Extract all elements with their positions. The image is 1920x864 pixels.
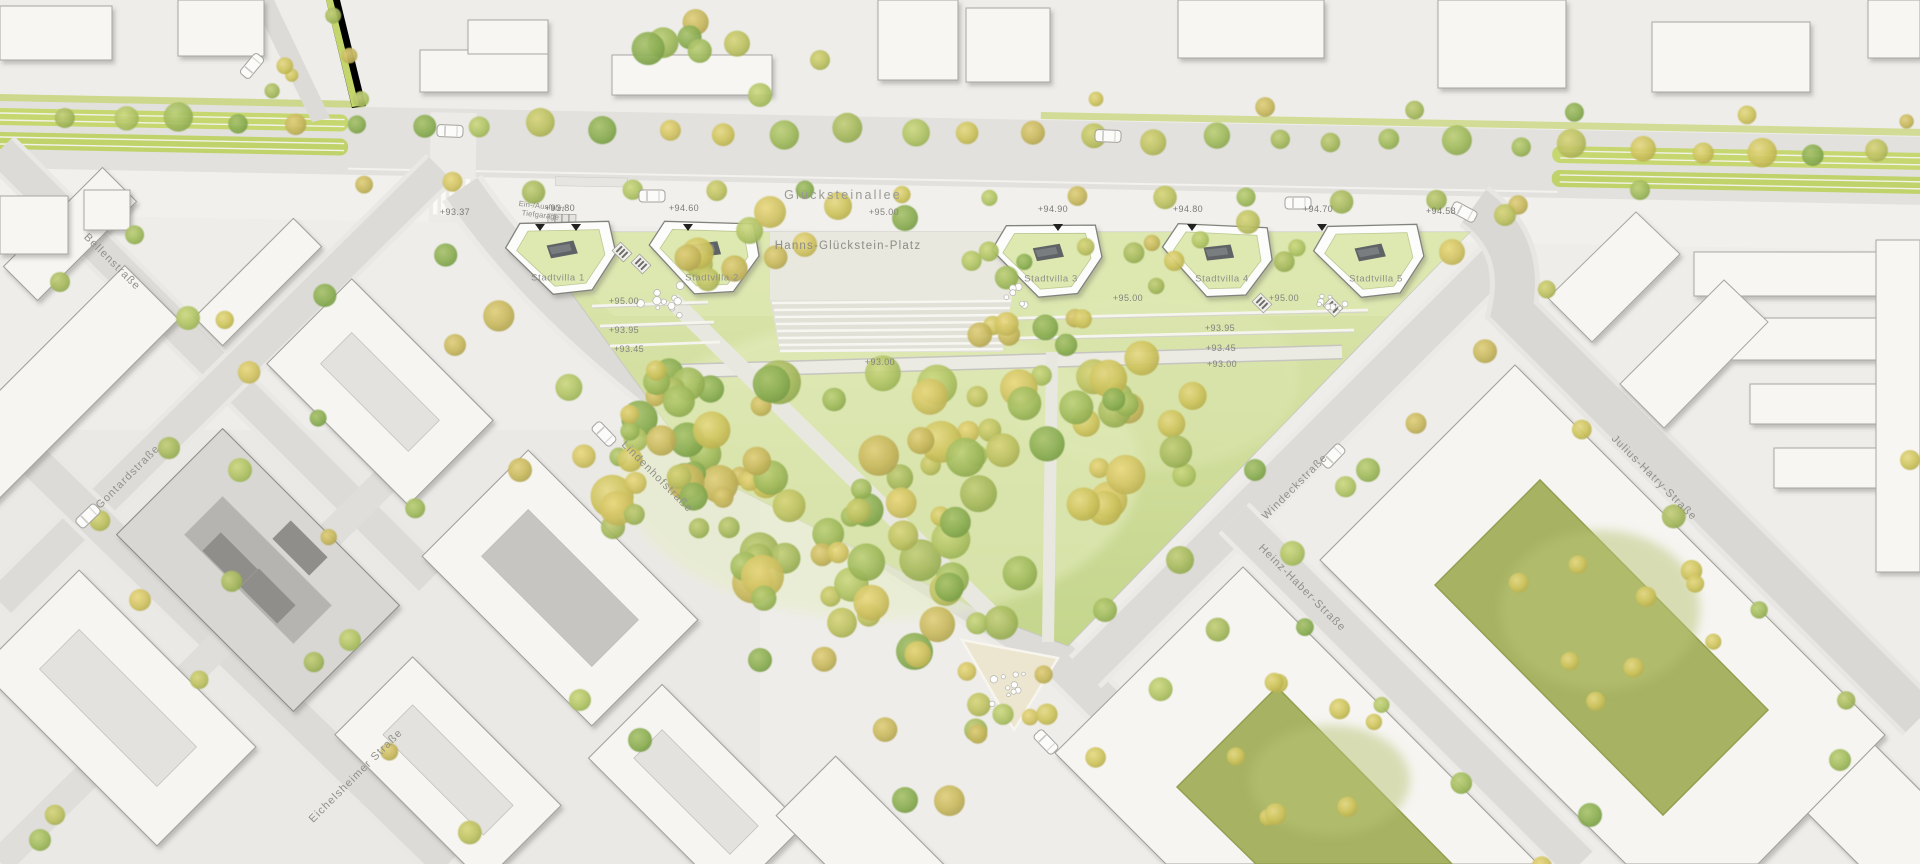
site-plan: Glücksteinallee Hanns-Glückstein-Platz E… xyxy=(0,0,1920,864)
plan-graphics xyxy=(0,0,1920,864)
path-diagonal-east xyxy=(1048,352,1052,642)
